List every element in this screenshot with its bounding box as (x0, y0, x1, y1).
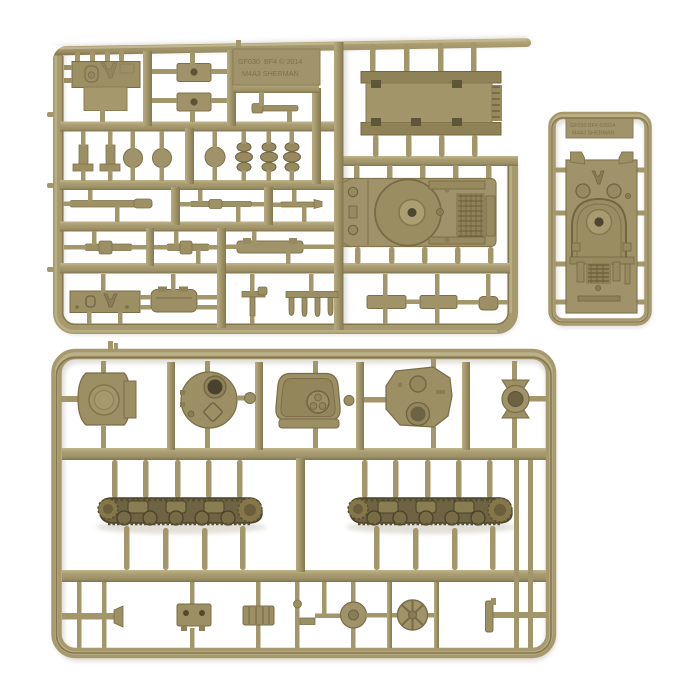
svg-text:M4A3 SHERMAN: M4A3 SHERMAN (242, 69, 299, 78)
svg-text:M4A3 SHERMAN: M4A3 SHERMAN (572, 131, 615, 137)
svg-text:GF030 BF4 © 2014: GF030 BF4 © 2014 (238, 57, 302, 66)
svg-text:GF030 BF4 ©2014: GF030 BF4 ©2014 (570, 122, 615, 129)
